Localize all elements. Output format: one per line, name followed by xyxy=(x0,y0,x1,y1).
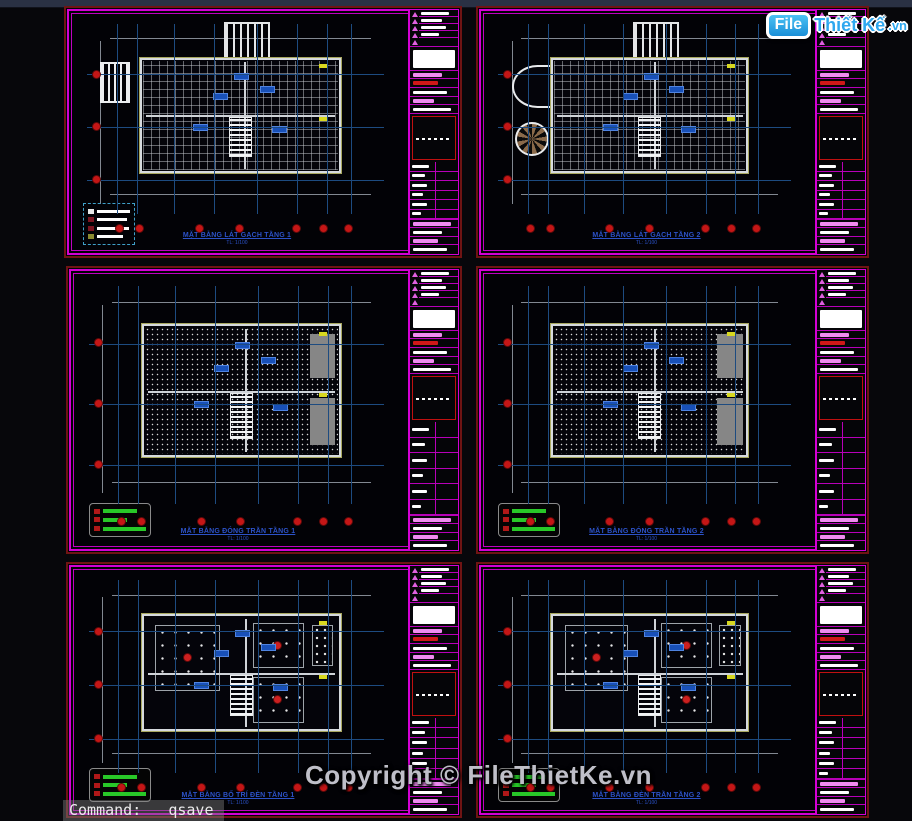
legend-text-line xyxy=(97,227,129,230)
grid-bubble-icon xyxy=(344,517,353,526)
legend-symbol-icon xyxy=(94,774,100,779)
room-label-tag xyxy=(669,357,684,364)
room-label-tag xyxy=(214,365,229,372)
grid-axis-line xyxy=(548,580,549,773)
dimension-line xyxy=(521,302,778,303)
porch-outline xyxy=(224,22,271,60)
grid-axis-line xyxy=(758,286,759,504)
sheet-tile-plan-floor-2[interactable]: MẶT BẰNG LÁT GẠCH TẦNG 2 TL: 1/100 xyxy=(476,6,869,258)
grid-axis-line xyxy=(175,580,176,773)
logo-text: Thiết Kế xyxy=(814,15,885,36)
title-block-revision-rows xyxy=(410,10,458,47)
company-name-red-text xyxy=(413,637,438,641)
grid-axis-line xyxy=(498,180,791,181)
grid-axis-line xyxy=(89,465,385,466)
model-space-area[interactable]: MẶT BẰNG ĐÓNG TRẦN TẦNG 1 TL: 1/100 xyxy=(72,272,404,548)
grid-bubble-icon xyxy=(546,517,555,526)
grid-bubble-icon xyxy=(727,517,736,526)
grid-axis-line xyxy=(735,286,736,504)
grid-axis-line xyxy=(706,286,707,504)
grid-axis-line xyxy=(758,580,759,773)
grid-bubble-icon xyxy=(645,517,654,526)
dimension-line xyxy=(521,194,778,195)
title-block xyxy=(408,10,458,254)
sheet-tile-plan-floor-1[interactable]: MẶT BẰNG LÁT GẠCH TẦNG 1 TL: 1/100 xyxy=(64,6,462,258)
legend-text-line xyxy=(103,775,137,779)
company-name-red-text xyxy=(413,341,438,345)
room-label-tag xyxy=(261,357,276,364)
grid-bubble-icon xyxy=(94,460,103,469)
revision-triangle-icons xyxy=(410,270,419,306)
legend-text-line xyxy=(103,509,137,513)
grid-axis-line xyxy=(298,580,299,773)
room-label-tag xyxy=(623,650,638,657)
filethietke-logo: File Thiết Kế .vn xyxy=(766,12,907,39)
dimension-line xyxy=(112,482,371,483)
legend-text-line xyxy=(103,792,146,796)
ceiling-fan-icon xyxy=(183,653,192,662)
title-block-revision-rows xyxy=(817,270,865,307)
grid-axis-line xyxy=(89,739,385,740)
legend-symbol-icon xyxy=(88,217,94,222)
grid-bubble-icon xyxy=(727,224,736,233)
title-block xyxy=(408,270,458,550)
title-block-logo-area xyxy=(410,603,458,627)
grid-bubble-icon xyxy=(135,224,144,233)
grid-axis-line xyxy=(623,580,624,773)
ceiling-fan-icon xyxy=(273,695,282,704)
grid-bubble-icon xyxy=(195,224,204,233)
drawing-title-red-box xyxy=(819,672,863,716)
grid-bubble-icon xyxy=(645,224,654,233)
section-marker xyxy=(727,675,735,679)
grid-axis-line xyxy=(328,286,329,504)
legend-text-line xyxy=(512,509,546,513)
grid-bubble-icon xyxy=(236,517,245,526)
section-marker xyxy=(319,64,327,68)
grid-axis-line xyxy=(548,286,549,504)
grid-axis-line xyxy=(584,24,585,214)
title-block-table xyxy=(817,162,865,220)
dimension-line xyxy=(521,595,778,596)
title-block-logo-area xyxy=(817,307,865,331)
grid-bubble-icon xyxy=(197,783,206,792)
grid-axis-line xyxy=(735,580,736,773)
grid-axis-line xyxy=(498,344,791,345)
grid-axis-line xyxy=(735,24,736,214)
stair-symbol xyxy=(230,393,253,439)
grid-axis-line xyxy=(215,580,216,773)
grid-bubble-icon xyxy=(197,517,206,526)
sheet-ceiling-plan-floor-1[interactable]: MẶT BẰNG ĐÓNG TRẦN TẦNG 1 TL: 1/100 xyxy=(66,266,462,554)
grid-axis-line xyxy=(584,286,585,504)
title-block xyxy=(815,566,865,814)
grid-axis-line xyxy=(498,127,791,128)
model-space-area[interactable]: MẶT BẰNG LÁT GẠCH TẦNG 2 TL: 1/100 xyxy=(482,12,811,252)
section-marker xyxy=(319,393,327,397)
grid-axis-line xyxy=(666,580,667,773)
grid-bubble-icon xyxy=(752,517,761,526)
grid-axis-line xyxy=(137,24,138,214)
grid-axis-line xyxy=(528,24,529,214)
legend-symbol-icon xyxy=(94,791,100,796)
grid-axis-line xyxy=(175,286,176,504)
legend-text-line xyxy=(512,527,555,531)
stair-symbol xyxy=(638,393,661,439)
grid-axis-line xyxy=(623,24,624,214)
grid-axis-line xyxy=(327,24,328,214)
porch-outline xyxy=(633,22,679,60)
grid-axis-line xyxy=(498,685,791,686)
grid-axis-line xyxy=(351,286,352,504)
logo-tld-text: .vn xyxy=(888,18,907,33)
section-marker xyxy=(319,117,327,121)
grid-axis-line xyxy=(89,685,385,686)
grid-axis-line xyxy=(174,24,175,214)
grid-bubble-icon xyxy=(503,70,512,79)
grid-axis-line xyxy=(89,344,385,345)
company-name-red-text xyxy=(413,81,438,85)
grid-bubble-icon xyxy=(293,517,302,526)
revision-triangle-icons xyxy=(817,566,826,602)
grid-axis-line xyxy=(257,24,258,214)
grid-axis-line xyxy=(706,24,707,214)
room-label-tag xyxy=(623,365,638,372)
title-block-logo-area xyxy=(410,307,458,331)
grid-bubble-icon xyxy=(701,224,710,233)
grid-axis-line xyxy=(117,24,118,214)
model-space-area[interactable]: MẶT BẰNG LÁT GẠCH TẦNG 1 TL: 1/100 xyxy=(70,12,404,252)
grid-axis-line xyxy=(215,286,216,504)
company-name-red-text xyxy=(820,637,845,641)
grid-bubble-icon xyxy=(92,70,101,79)
grid-axis-line xyxy=(498,404,791,405)
room-label-tag xyxy=(214,650,229,657)
title-block xyxy=(815,270,865,550)
section-marker xyxy=(727,621,735,625)
grid-bubble-icon xyxy=(94,399,103,408)
grid-axis-line xyxy=(297,24,298,214)
grid-axis-line xyxy=(666,24,667,214)
grid-axis-line xyxy=(89,631,385,632)
room-outline xyxy=(155,625,219,691)
grid-axis-line xyxy=(258,580,259,773)
sheet-ceiling-plan-floor-2[interactable]: MẶT BẰNG ĐÓNG TRẦN TẦNG 2 TL: 1/100 xyxy=(476,266,869,554)
autocad-viewport[interactable]: MẶT BẰNG LÁT GẠCH TẦNG 1 TL: 1/100 xyxy=(0,0,912,821)
grid-bubble-icon xyxy=(94,680,103,689)
grid-bubble-icon xyxy=(701,517,710,526)
grid-bubble-icon xyxy=(546,224,555,233)
revision-triangle-icons xyxy=(410,566,419,602)
legend-text-line xyxy=(97,210,130,213)
legend-symbol-icon xyxy=(88,209,94,214)
grid-axis-line xyxy=(87,180,384,181)
room-outline xyxy=(565,625,629,691)
plan-title: MẶT BẰNG LÁT GẠCH TẦNG 2 xyxy=(482,232,811,239)
room-label-tag xyxy=(623,93,638,100)
ceiling-fan-icon xyxy=(682,695,691,704)
grid-axis-line xyxy=(89,404,385,405)
legend-text-line xyxy=(97,218,127,221)
grid-bubble-icon xyxy=(752,224,761,233)
drawing-title-red-box xyxy=(819,376,863,420)
title-block-table xyxy=(410,162,458,220)
legend-text-line xyxy=(97,235,123,238)
grid-axis-line xyxy=(666,286,667,504)
grid-bubble-icon xyxy=(319,224,328,233)
grid-axis-line xyxy=(118,580,119,773)
dimension-line xyxy=(110,194,371,195)
dimension-line xyxy=(112,595,371,596)
command-line-input[interactable]: Command: qsave xyxy=(63,800,224,821)
revision-triangle-icons xyxy=(817,270,826,306)
dimension-line xyxy=(521,753,778,754)
drawing-title-red-box xyxy=(819,116,863,160)
legend-text-line xyxy=(512,792,555,796)
room-label-tag xyxy=(261,644,276,651)
ceiling-panel-patch xyxy=(310,334,335,378)
legend-text-line xyxy=(103,527,146,531)
section-marker xyxy=(727,64,735,68)
grid-bubble-icon xyxy=(344,224,353,233)
room-label-tag xyxy=(260,86,275,93)
grid-bubble-icon xyxy=(92,175,101,184)
grid-axis-line xyxy=(498,74,791,75)
title-block xyxy=(815,10,865,254)
drawing-title-red-box xyxy=(412,376,456,420)
grid-axis-line xyxy=(298,286,299,504)
grid-axis-line xyxy=(706,580,707,773)
grid-axis-line xyxy=(528,580,529,773)
grid-bubble-icon xyxy=(94,338,103,347)
grid-axis-line xyxy=(138,286,139,504)
legend-symbol-icon xyxy=(94,517,100,522)
grid-axis-line xyxy=(351,580,352,773)
section-marker xyxy=(727,117,735,121)
room-label-tag xyxy=(669,86,684,93)
logo-file-badge-icon: File xyxy=(766,12,812,39)
grid-axis-line xyxy=(214,24,215,214)
grid-bubble-icon xyxy=(117,517,126,526)
room-label-tag xyxy=(213,93,228,100)
legend-symbol-icon xyxy=(503,526,509,531)
grid-axis-line xyxy=(548,24,549,214)
company-name-red-text xyxy=(820,341,845,345)
grid-axis-line xyxy=(623,286,624,504)
grid-axis-line xyxy=(498,739,791,740)
grid-bubble-icon xyxy=(319,517,328,526)
legend-symbol-icon xyxy=(503,791,509,796)
ceiling-fan-icon xyxy=(592,653,601,662)
section-marker xyxy=(727,332,735,336)
plan-scale: TL: 1/100 xyxy=(482,240,811,246)
legend-box xyxy=(83,203,135,245)
room-label-tag xyxy=(669,644,684,651)
legend-symbol-icon xyxy=(503,509,509,514)
stair-symbol xyxy=(229,117,253,157)
grid-axis-line xyxy=(528,286,529,504)
grid-axis-line xyxy=(498,465,791,466)
legend-symbol-icon xyxy=(94,783,100,788)
title-block-table xyxy=(817,718,865,780)
legend-symbol-icon xyxy=(88,234,94,239)
title-block-logo-area xyxy=(817,603,865,627)
grid-bubble-icon xyxy=(115,224,124,233)
grid-axis-line xyxy=(498,631,791,632)
stair-symbol xyxy=(638,117,661,157)
revision-triangle-icons xyxy=(410,10,419,46)
title-block-revision-rows xyxy=(817,566,865,603)
stair-symbol xyxy=(230,675,253,716)
model-space-area[interactable]: MẶT BẰNG ĐÓNG TRẦN TẦNG 2 TL: 1/100 xyxy=(482,272,811,548)
grid-axis-line xyxy=(351,24,352,214)
legend-symbol-icon xyxy=(503,517,509,522)
title-block-logo-area xyxy=(410,47,458,71)
company-name-red-text xyxy=(820,81,845,85)
section-marker xyxy=(727,393,735,397)
legend-symbol-icon xyxy=(94,526,100,531)
grid-axis-line xyxy=(87,127,384,128)
grid-bubble-icon xyxy=(292,224,301,233)
dimension-line xyxy=(521,482,778,483)
title-block-logo-area xyxy=(817,47,865,71)
title-block-table xyxy=(817,422,865,516)
section-marker xyxy=(319,621,327,625)
grid-axis-line xyxy=(328,580,329,773)
grid-axis-line xyxy=(584,580,585,773)
drawing-title-red-box xyxy=(412,672,456,716)
section-marker xyxy=(319,332,327,336)
grid-axis-line xyxy=(138,580,139,773)
dimension-line xyxy=(112,753,371,754)
stair-symbol xyxy=(638,675,661,716)
dimension-line xyxy=(112,302,371,303)
grid-bubble-icon xyxy=(605,517,614,526)
title-block-revision-rows xyxy=(410,566,458,603)
grid-bubble-icon xyxy=(94,627,103,636)
ceiling-panel-patch xyxy=(717,334,742,378)
grid-bubble-icon xyxy=(137,517,146,526)
grid-axis-line xyxy=(258,286,259,504)
copyright-watermark: Copyright © FileThietKe.vn xyxy=(305,760,652,791)
grid-bubble-icon xyxy=(503,627,512,636)
side-stair-outline xyxy=(100,62,130,103)
section-marker xyxy=(319,675,327,679)
grid-axis-line xyxy=(118,286,119,504)
legend-symbol-icon xyxy=(88,226,94,231)
grid-bubble-icon xyxy=(94,734,103,743)
grid-axis-line xyxy=(87,74,384,75)
title-block-revision-rows xyxy=(410,270,458,307)
drawing-title-red-box xyxy=(412,116,456,160)
legend-symbol-icon xyxy=(94,509,100,514)
title-block-table xyxy=(410,422,458,516)
grid-axis-line xyxy=(758,24,759,214)
